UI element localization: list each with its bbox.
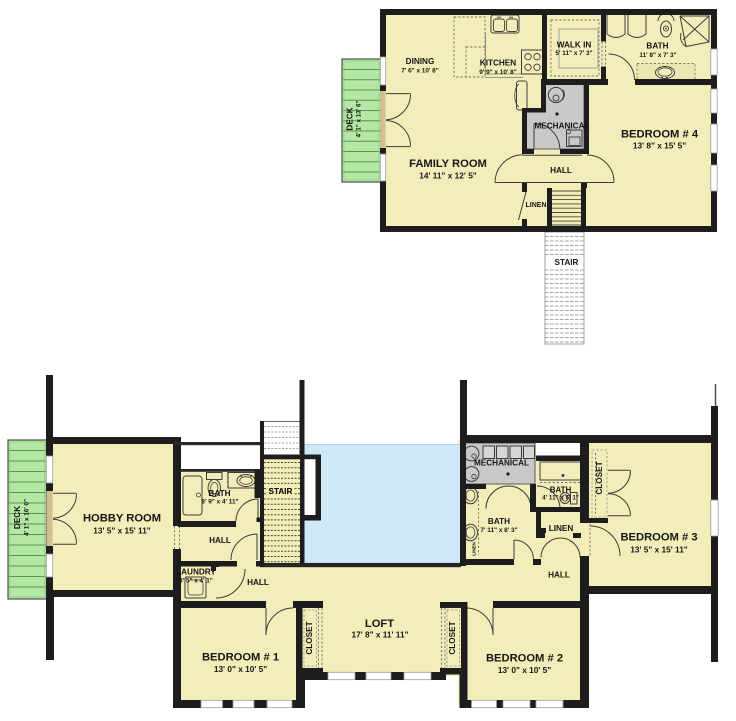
svg-text:4' 11" x 6' 1": 4' 11" x 6' 1" <box>542 495 579 502</box>
svg-text:BEDROOM # 2: BEDROOM # 2 <box>486 653 563 665</box>
svg-text:BATH: BATH <box>646 42 668 51</box>
svg-text:HALL: HALL <box>209 536 231 545</box>
svg-text:13' 0" x 10' 5": 13' 0" x 10' 5" <box>214 664 267 674</box>
svg-text:LINEN: LINEN <box>549 524 574 533</box>
svg-text:CLOSET: CLOSET <box>305 621 314 654</box>
svg-text:HOBBY ROOM: HOBBY ROOM <box>83 513 161 525</box>
svg-text:11' 8" x 7' 3": 11' 8" x 7' 3" <box>639 52 676 59</box>
svg-text:4' 1" x 13' 6": 4' 1" x 13' 6" <box>356 101 363 138</box>
svg-text:DECK: DECK <box>13 506 22 529</box>
svg-text:BATH: BATH <box>488 517 510 526</box>
svg-text:7' 6" x 10' 8": 7' 6" x 10' 8" <box>401 68 439 75</box>
svg-text:CLOSET: CLOSET <box>448 621 457 654</box>
svg-text:BATH: BATH <box>550 486 572 495</box>
svg-text:DINING: DINING <box>406 57 435 66</box>
svg-text:4' 1" x 16' 0": 4' 1" x 16' 0" <box>24 499 31 536</box>
svg-text:13' 5" x 15' 11": 13' 5" x 15' 11" <box>630 545 688 555</box>
svg-text:HALL: HALL <box>247 578 269 587</box>
svg-text:17' 8" x 11' 11": 17' 8" x 11' 11" <box>351 630 408 640</box>
svg-text:LOFT: LOFT <box>365 618 394 630</box>
svg-text:LAUNDRY: LAUNDRY <box>176 568 216 577</box>
svg-text:HALL: HALL <box>550 166 572 175</box>
svg-text:LINEN: LINEN <box>472 542 477 556</box>
svg-text:WALK IN: WALK IN <box>557 41 592 50</box>
svg-text:7' 11" x 8' 3": 7' 11" x 8' 3" <box>480 527 517 534</box>
svg-text:CLOSET: CLOSET <box>595 461 604 494</box>
svg-text:9' 9" x 10' 8": 9' 9" x 10' 8" <box>479 69 517 76</box>
svg-text:STAIR: STAIR <box>269 487 293 496</box>
svg-text:KITCHEN: KITCHEN <box>480 59 516 68</box>
svg-text:BEDROOM # 1: BEDROOM # 1 <box>202 652 279 664</box>
svg-text:13' 8" x 15' 5": 13' 8" x 15' 5" <box>633 141 686 151</box>
svg-text:BATH: BATH <box>208 489 230 498</box>
svg-text:HALL: HALL <box>548 571 570 580</box>
svg-text:MECHANICAL: MECHANICAL <box>474 459 529 468</box>
svg-text:LINEN: LINEN <box>526 202 547 209</box>
svg-text:FAMILY ROOM: FAMILY ROOM <box>409 158 487 170</box>
svg-text:14' 11" x 12' 5": 14' 11" x 12' 5" <box>419 171 477 181</box>
svg-text:3' 5" x 4' 1": 3' 5" x 4' 1" <box>179 578 212 585</box>
svg-text:MECHANICAL: MECHANICAL <box>534 122 589 131</box>
svg-text:5' 11" x 7' 3": 5' 11" x 7' 3" <box>555 50 592 57</box>
svg-text:DECK: DECK <box>346 107 355 130</box>
svg-text:13' 0" x 10' 5": 13' 0" x 10' 5" <box>498 665 551 675</box>
svg-text:STAIR: STAIR <box>555 258 579 267</box>
svg-text:13' 5" x 15' 11": 13' 5" x 15' 11" <box>93 526 151 536</box>
svg-text:8' 9" x 4' 11": 8' 9" x 4' 11" <box>201 499 238 506</box>
svg-text:BEDROOM # 4: BEDROOM # 4 <box>621 129 699 141</box>
svg-text:BEDROOM # 3: BEDROOM # 3 <box>620 532 697 544</box>
